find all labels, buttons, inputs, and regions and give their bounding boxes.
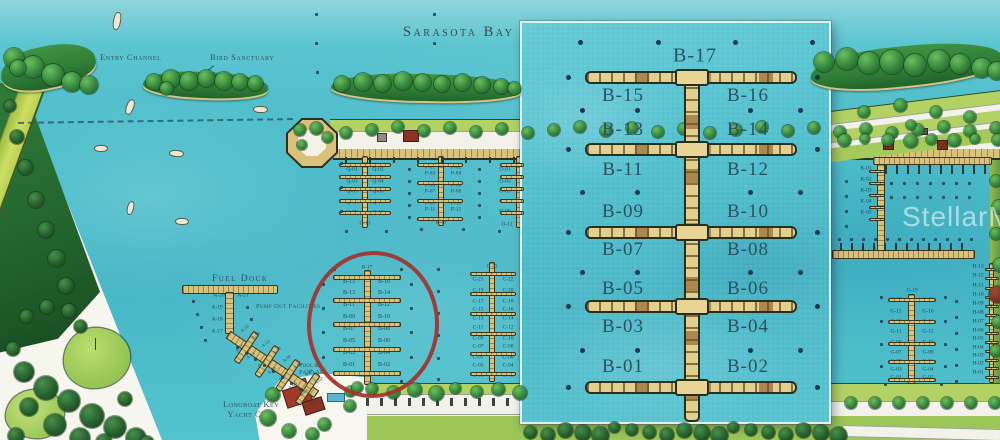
marker-dot	[299, 388, 302, 391]
tree	[282, 424, 296, 438]
parked-car	[380, 398, 383, 406]
marker-dot	[884, 383, 887, 386]
marker-dot	[236, 346, 239, 349]
marker-dot	[272, 370, 275, 373]
slip-label: A-10	[272, 347, 282, 356]
slip-label: H-11	[972, 283, 983, 289]
tree	[62, 72, 82, 92]
tree	[575, 425, 591, 440]
marker-dot	[955, 182, 958, 185]
inset-slip-label: B-07	[602, 239, 644, 261]
slip-label: G-19	[906, 288, 917, 294]
slip-tick	[851, 243, 853, 251]
marker-dot	[437, 357, 440, 360]
slip-tick	[950, 243, 952, 251]
marker-dot	[845, 210, 848, 213]
tree	[904, 54, 926, 76]
marker-dot	[845, 180, 848, 183]
slip-tick	[961, 243, 963, 251]
slip-label: A-12	[261, 339, 271, 348]
marker-dot	[944, 296, 947, 299]
slip-label: P-08	[451, 189, 461, 195]
tree	[408, 383, 422, 397]
dock-crossbar	[985, 359, 999, 362]
marker-dot	[254, 358, 257, 361]
slip-label: O-01	[499, 167, 510, 173]
tree	[965, 397, 977, 409]
inset-slip-label: B-12	[727, 159, 769, 181]
slip-label: A-02	[314, 376, 324, 385]
inset-slip-label: B-08	[727, 239, 769, 261]
dock-crossbar	[869, 170, 885, 173]
tree	[366, 124, 378, 136]
dock-crossbar	[470, 372, 516, 376]
marker-dot	[955, 196, 958, 199]
inset-slip-label: B-16	[727, 85, 769, 107]
dock-crossbar	[339, 163, 391, 167]
dock-c: C-23 C-21C-22C-19C-20C-17C-18C-15C-16C-1…	[462, 260, 522, 390]
marker-dot	[315, 42, 318, 45]
dock-crossbar	[888, 320, 936, 324]
boat	[253, 106, 268, 114]
inset-slip-label: B-02	[727, 356, 769, 378]
marker-dot	[748, 348, 753, 353]
slip-label: C-14	[503, 316, 514, 322]
dock-crossbar	[470, 312, 516, 316]
marker-dot	[940, 383, 943, 386]
dock-crossbar	[500, 163, 524, 167]
marker-dot	[408, 216, 411, 219]
tree	[340, 127, 352, 139]
dock-crossbar	[339, 187, 391, 191]
parked-car	[464, 398, 467, 406]
marker-dot	[433, 13, 436, 16]
dock-crossbar	[985, 367, 999, 370]
tree	[880, 50, 904, 74]
tree	[34, 376, 58, 400]
marker-dot	[968, 196, 971, 199]
dock-crossbar	[888, 298, 936, 302]
slip-label: P-03	[425, 171, 435, 177]
slip-label: P-12	[451, 207, 461, 213]
tree	[813, 425, 829, 440]
tree	[990, 122, 1000, 134]
inset-top-slip-label: B-17	[673, 45, 717, 68]
tree	[394, 72, 412, 90]
slip-tick	[513, 157, 515, 163]
marker-dot	[200, 326, 203, 329]
tree	[782, 125, 794, 137]
marker-dot	[566, 385, 571, 390]
marker-dot	[955, 300, 958, 303]
marker-dot	[635, 190, 640, 195]
dock-crossbar	[985, 277, 999, 280]
tree	[677, 423, 692, 438]
slip-label: A-19	[211, 305, 222, 311]
tree	[14, 362, 34, 382]
slip-label: C-18	[503, 299, 514, 305]
bay-title: Sarasota Bay	[403, 24, 514, 41]
tree	[48, 250, 65, 267]
slip-label: A-01	[309, 396, 319, 405]
slip-tick	[895, 243, 897, 251]
marker-dot	[934, 238, 937, 241]
tree	[988, 62, 1000, 80]
marker-dot	[566, 230, 571, 235]
marker-dot	[656, 40, 661, 45]
tree	[322, 132, 333, 143]
marker-dot	[635, 108, 640, 113]
boat	[169, 149, 184, 157]
tree	[334, 76, 350, 92]
dock-crossbar	[888, 342, 936, 346]
parked-car	[422, 398, 425, 406]
marker-dot	[250, 318, 253, 321]
tree	[180, 72, 198, 90]
slip-label: H-09	[972, 301, 983, 307]
dock-crossbar	[470, 352, 516, 356]
marker-dot	[433, 42, 436, 45]
tree	[494, 79, 509, 94]
slip-label: H-12	[972, 273, 983, 279]
marker-dot	[946, 238, 949, 241]
slip-label: C-03	[473, 363, 484, 369]
slip-tick	[840, 243, 842, 251]
marker-dot	[196, 313, 199, 316]
marker-dot	[733, 40, 738, 45]
marker-dot	[580, 348, 585, 353]
tree	[941, 397, 953, 409]
marker-dot	[903, 182, 906, 185]
slip-label: G-11	[890, 329, 901, 335]
marker-dot	[635, 348, 640, 353]
marker-dot	[903, 196, 906, 199]
tree	[762, 426, 775, 439]
parked-car	[450, 398, 453, 406]
tree	[992, 134, 1000, 146]
tree	[470, 126, 482, 138]
tree	[904, 134, 918, 148]
slip-label: A-04	[304, 369, 314, 378]
tree	[374, 75, 391, 92]
tree	[860, 134, 870, 144]
slip-label: H-01	[972, 370, 983, 376]
inset-dock-junction	[675, 224, 709, 241]
tree	[893, 397, 905, 409]
slip-tick	[862, 243, 864, 251]
tree	[522, 127, 534, 139]
marker-dot	[245, 352, 248, 355]
dock-crossbar	[888, 378, 936, 382]
dock-crossbar	[500, 187, 524, 191]
tree	[8, 428, 24, 440]
tree	[306, 428, 319, 440]
dock-crossbar	[985, 341, 999, 344]
marker-dot	[462, 228, 465, 231]
slip-label: A-06	[293, 361, 303, 370]
tree	[694, 425, 710, 440]
marker-dot	[340, 210, 343, 213]
slip-label: G-16	[922, 309, 933, 315]
parked-car	[366, 398, 369, 406]
slip-label: O-03	[499, 179, 510, 185]
slip-label: G-12	[922, 329, 933, 335]
tree	[444, 122, 456, 134]
boat	[175, 218, 189, 225]
tree	[964, 111, 976, 123]
tree	[354, 73, 372, 91]
dock-crossbar	[417, 181, 463, 185]
tree	[474, 77, 490, 93]
slip-label: C-10	[503, 336, 514, 342]
parked-car	[408, 398, 411, 406]
slip-tick	[917, 243, 919, 251]
tree	[6, 342, 20, 356]
b-dock-inset-panel: B-17 B-15B-16B-13B-14B-11B-12B-09B-10B-0…	[520, 21, 831, 424]
tree	[248, 76, 263, 91]
slip-label: G-03	[890, 367, 901, 373]
tree	[745, 424, 757, 436]
slip-label: O-11	[501, 222, 512, 228]
marker-dot	[580, 270, 585, 275]
marker-dot	[478, 204, 481, 207]
marker-dot	[910, 238, 913, 241]
tree	[990, 345, 1000, 357]
tree	[297, 140, 307, 150]
marker-dot	[498, 230, 501, 233]
tree	[118, 392, 132, 406]
marker-dot	[880, 365, 883, 368]
tree	[429, 386, 444, 401]
tree	[906, 120, 916, 130]
marker-dot	[580, 190, 585, 195]
inset-slip-label: B-06	[727, 278, 769, 300]
dock-crossbar	[339, 211, 391, 215]
slip-label: C-22	[503, 277, 514, 283]
marker-dot	[886, 238, 889, 241]
slip-label: H-10	[972, 292, 983, 298]
tree	[592, 427, 609, 440]
tree	[993, 258, 1000, 272]
tree	[20, 398, 38, 416]
slip-label: C-23	[487, 264, 498, 270]
dock-crossbar	[339, 199, 391, 203]
tree	[42, 64, 64, 86]
tree	[970, 134, 980, 144]
tree	[779, 428, 793, 440]
tree	[513, 386, 527, 400]
slip-tick	[345, 157, 347, 163]
slip-tick	[962, 164, 964, 174]
slip-label: G-15	[890, 309, 901, 315]
tree	[845, 397, 857, 409]
inset-slip-label: B-01	[602, 356, 644, 378]
marina-site-plan: Sarasota Bay Entry Channel Bird Sanctuar…	[0, 0, 1000, 440]
tree	[882, 134, 894, 146]
tree	[990, 175, 1000, 187]
tree	[40, 300, 54, 314]
marker-dot	[798, 190, 803, 195]
dock-crossbar	[985, 305, 999, 308]
slip-label: A-20	[213, 293, 224, 299]
marker-dot	[566, 147, 571, 152]
tree	[392, 121, 404, 133]
marker-dot	[420, 228, 423, 231]
marker-dot	[944, 365, 947, 368]
inset-slip-label: B-15	[602, 85, 644, 107]
marker-dot	[340, 186, 343, 189]
slip-label: P-11	[425, 207, 435, 213]
tree	[541, 428, 555, 440]
dock-crossbar	[339, 175, 391, 179]
tree	[728, 422, 739, 433]
dock-crossbar	[869, 206, 885, 209]
slip-tick	[918, 164, 920, 174]
tree	[28, 192, 44, 208]
tree	[930, 106, 942, 118]
tree	[989, 397, 1000, 409]
marker-dot	[478, 216, 481, 219]
slip-label: P-13	[436, 220, 446, 226]
inset-dock-junction	[675, 69, 709, 86]
tree	[858, 106, 870, 118]
tree	[310, 122, 323, 135]
marker-dot	[204, 339, 207, 342]
slip-label: A-08	[282, 354, 292, 363]
marker-dot	[408, 192, 411, 195]
tree	[609, 422, 620, 433]
marker-dot	[798, 348, 803, 353]
tree	[796, 423, 811, 438]
slip-tick	[489, 157, 491, 163]
dock-crossbar	[417, 163, 463, 167]
inset-dock-junction	[675, 298, 709, 315]
marker-dot	[955, 380, 958, 383]
slip-tick	[928, 243, 930, 251]
marker-dot	[890, 196, 893, 199]
marker-dot	[748, 270, 753, 275]
tree	[471, 386, 483, 398]
slip-label: Q-04	[372, 179, 383, 185]
marker-dot	[578, 40, 583, 45]
tree	[917, 397, 929, 409]
marker-dot	[263, 364, 266, 367]
marker-dot	[874, 238, 877, 241]
inset-slip-label: B-14	[727, 119, 769, 141]
tree	[18, 160, 33, 175]
marker-dot	[408, 204, 411, 207]
slip-label: C-21	[473, 277, 484, 283]
tree	[294, 124, 306, 136]
marker-dot	[880, 320, 883, 323]
marker-dot	[955, 316, 958, 319]
marker-dot	[815, 385, 820, 390]
entry-channel-label: Entry Channel	[100, 52, 161, 62]
slip-label: P-07	[425, 189, 435, 195]
tree	[74, 320, 87, 333]
dock-crossbar	[888, 360, 936, 364]
slip-label: K-03	[860, 188, 871, 194]
marker-dot	[437, 290, 440, 293]
tree	[508, 82, 521, 95]
tree	[58, 390, 80, 412]
slip-label: Q-03	[346, 179, 357, 185]
dock-crossbar	[417, 199, 463, 203]
dock-g: G-19 G-17G-18G-15G-16G-13G-14G-11G-12G-0…	[880, 287, 945, 387]
tree	[643, 426, 656, 439]
marker-dot	[929, 182, 932, 185]
parked-car	[506, 398, 509, 406]
inset-slip-label: B-11	[602, 159, 643, 181]
dock-crossbar	[500, 199, 524, 203]
tree	[160, 82, 173, 95]
marker-dot	[437, 268, 440, 271]
slip-label: K-05	[860, 210, 871, 216]
slip-label: C-13	[473, 316, 484, 322]
tree	[660, 428, 674, 440]
marker-dot	[315, 13, 318, 16]
inset-slip-label: B-09	[602, 201, 644, 223]
marker-dot	[798, 270, 803, 275]
marker-dot	[968, 182, 971, 185]
marker-dot	[942, 182, 945, 185]
tree	[858, 52, 880, 74]
tree	[266, 388, 280, 402]
dock-crossbar	[470, 332, 516, 336]
tree	[711, 427, 728, 440]
tree	[38, 222, 54, 238]
tree	[318, 418, 331, 431]
slip-tick	[884, 243, 886, 251]
dock-crossbar	[500, 175, 524, 179]
marker-dot	[815, 304, 820, 309]
tree	[232, 74, 248, 90]
tree	[926, 134, 937, 145]
stellar-mls-watermark: StellarMLS	[902, 201, 1000, 233]
slip-label: H-07	[972, 319, 983, 325]
inset-slip-label: B-13	[602, 119, 644, 141]
tree	[492, 383, 505, 396]
tree	[454, 74, 471, 91]
slip-label: C-06	[503, 355, 514, 361]
tree	[938, 121, 950, 133]
marker-dot	[890, 182, 893, 185]
slip-tick	[906, 243, 908, 251]
marker-dot	[815, 75, 820, 80]
marker-dot	[580, 108, 585, 113]
marker-dot	[408, 168, 411, 171]
slip-label: C-17	[473, 299, 484, 305]
tree	[558, 423, 573, 438]
dock-k: K-01K-02K-03K-04K-05	[850, 155, 895, 225]
slip-label: H-02	[972, 361, 983, 367]
slip-tick	[896, 164, 898, 174]
tree	[992, 316, 1000, 328]
tree	[704, 127, 716, 139]
dock-crossbar	[470, 272, 516, 276]
marker-dot	[192, 300, 195, 303]
tree	[434, 76, 450, 92]
marker-dot	[281, 376, 284, 379]
slip-tick	[951, 164, 953, 174]
inset-slip-label: B-04	[727, 316, 769, 338]
tree	[450, 383, 461, 394]
marker-dot	[944, 343, 947, 346]
tree	[838, 134, 851, 147]
slip-tick	[417, 157, 419, 163]
marker-dot	[958, 238, 961, 241]
marker-dot	[916, 182, 919, 185]
